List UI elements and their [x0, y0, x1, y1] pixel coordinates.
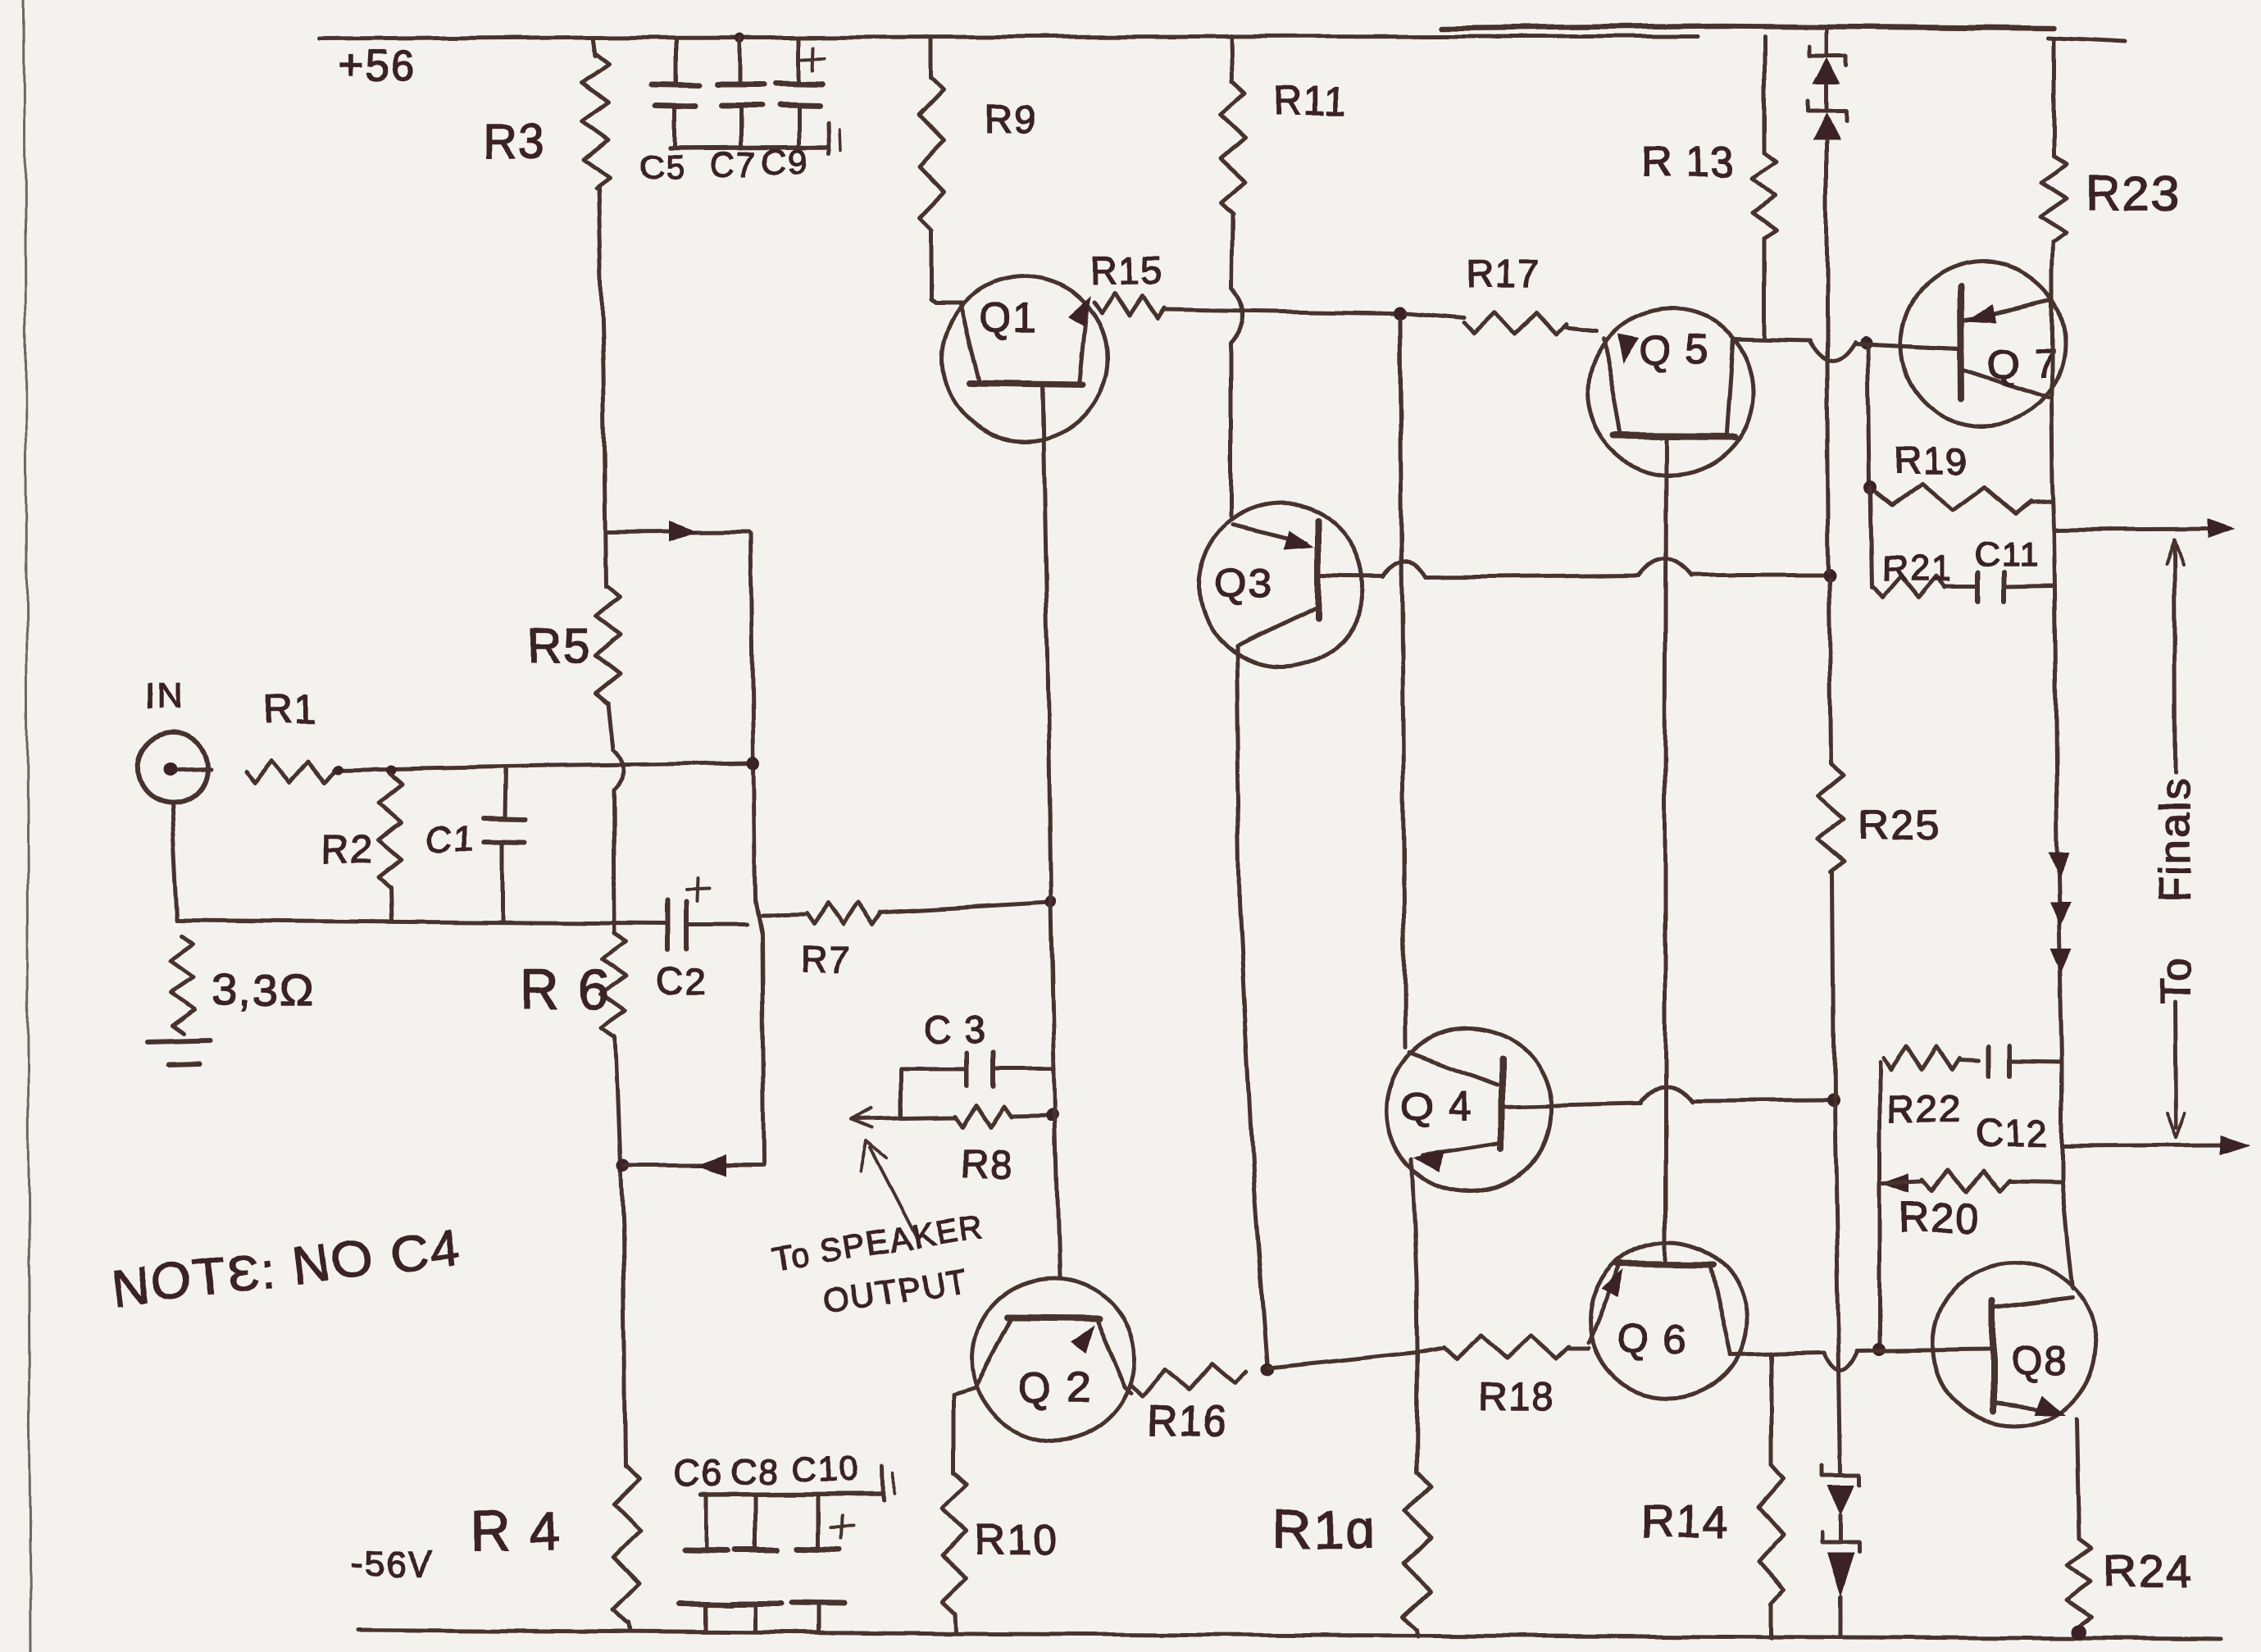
svg-text:R22: R22	[1887, 1087, 1961, 1130]
svg-text:R16: R16	[1148, 1398, 1228, 1444]
svg-text:Q1: Q1	[980, 294, 1038, 340]
svg-text:R3: R3	[482, 115, 546, 168]
svg-text:R 13: R 13	[1641, 139, 1735, 184]
svg-text:R17: R17	[1466, 253, 1540, 295]
svg-text:C8: C8	[730, 1452, 780, 1492]
svg-text:C2: C2	[656, 959, 707, 1002]
svg-text:Q 5: Q 5	[1640, 327, 1711, 373]
svg-text:C 3: C 3	[924, 1008, 988, 1051]
svg-text:Q 4: Q 4	[1401, 1083, 1472, 1129]
svg-text:R11: R11	[1274, 80, 1349, 124]
svg-text:R14: R14	[1640, 1496, 1730, 1548]
svg-text:C5: C5	[639, 148, 686, 187]
svg-text:3,3Ω: 3,3Ω	[212, 964, 315, 1015]
svg-text:Q3: Q3	[1215, 560, 1273, 606]
svg-text:C7: C7	[710, 145, 757, 184]
svg-text:R5: R5	[527, 620, 591, 673]
svg-text:R8: R8	[960, 1143, 1013, 1186]
svg-text:Q 7: Q 7	[1987, 342, 2059, 388]
svg-text:R7: R7	[800, 938, 852, 981]
svg-text:R 6: R 6	[520, 958, 612, 1021]
svg-text:R15: R15	[1090, 249, 1164, 292]
svg-text:C11: C11	[1974, 535, 2040, 573]
svg-text:IN: IN	[144, 676, 184, 717]
svg-text:-56V: -56V	[351, 1544, 434, 1584]
svg-text:R2: R2	[321, 828, 374, 872]
svg-text:R18: R18	[1478, 1376, 1555, 1419]
svg-text:R23: R23	[2086, 166, 2181, 221]
svg-text:C9: C9	[762, 143, 809, 181]
svg-text:R20: R20	[1899, 1195, 1980, 1240]
svg-text:Finals: Finals	[2151, 778, 2199, 902]
svg-text:C10: C10	[792, 1449, 860, 1488]
svg-text:C12: C12	[1975, 1112, 2049, 1154]
svg-text:R1ɑ: R1ɑ	[1272, 1499, 1376, 1559]
svg-text:R 4: R 4	[470, 1501, 562, 1563]
svg-text:R24: R24	[2104, 1545, 2193, 1597]
svg-text:C6: C6	[674, 1454, 723, 1494]
svg-text:Q 2: Q 2	[1018, 1364, 1092, 1412]
svg-text:R1: R1	[264, 689, 317, 732]
svg-text:Q8: Q8	[2010, 1337, 2068, 1383]
svg-text:R25: R25	[1858, 802, 1940, 849]
svg-text:Q 6: Q 6	[1617, 1316, 1688, 1362]
svg-text:+56: +56	[339, 43, 416, 90]
svg-text:To: To	[2153, 956, 2200, 1004]
svg-text:R9: R9	[985, 98, 1038, 142]
svg-text:R19: R19	[1894, 439, 1968, 482]
svg-text:R21: R21	[1881, 548, 1953, 589]
svg-text:R10: R10	[975, 1517, 1058, 1564]
svg-text:C1: C1	[426, 819, 475, 859]
